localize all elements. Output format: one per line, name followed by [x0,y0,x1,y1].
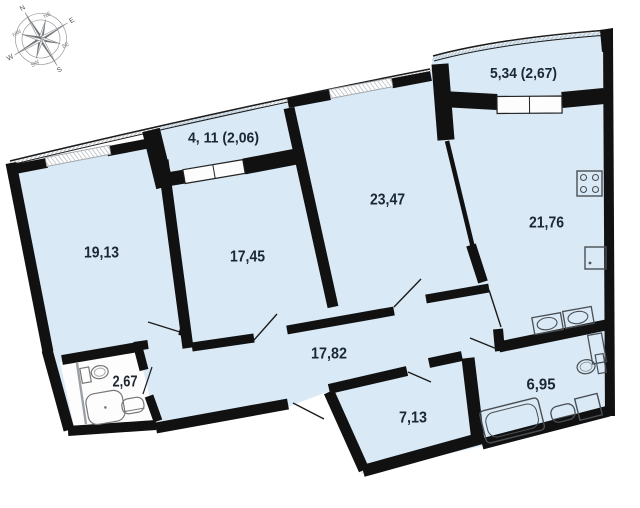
svg-text:4, 11 (2,06): 4, 11 (2,06) [188,130,259,147]
svg-text:7,13: 7,13 [399,410,427,427]
svg-text:21,76: 21,76 [529,215,564,232]
svg-text:23,47: 23,47 [370,192,405,209]
svg-text:17,82: 17,82 [311,346,347,363]
svg-text:5,34 (2,67): 5,34 (2,67) [490,65,557,82]
svg-text:17,45: 17,45 [230,249,265,266]
svg-text:2,67: 2,67 [113,374,138,391]
svg-text:6,95: 6,95 [527,377,556,394]
svg-text:19,13: 19,13 [84,245,119,262]
